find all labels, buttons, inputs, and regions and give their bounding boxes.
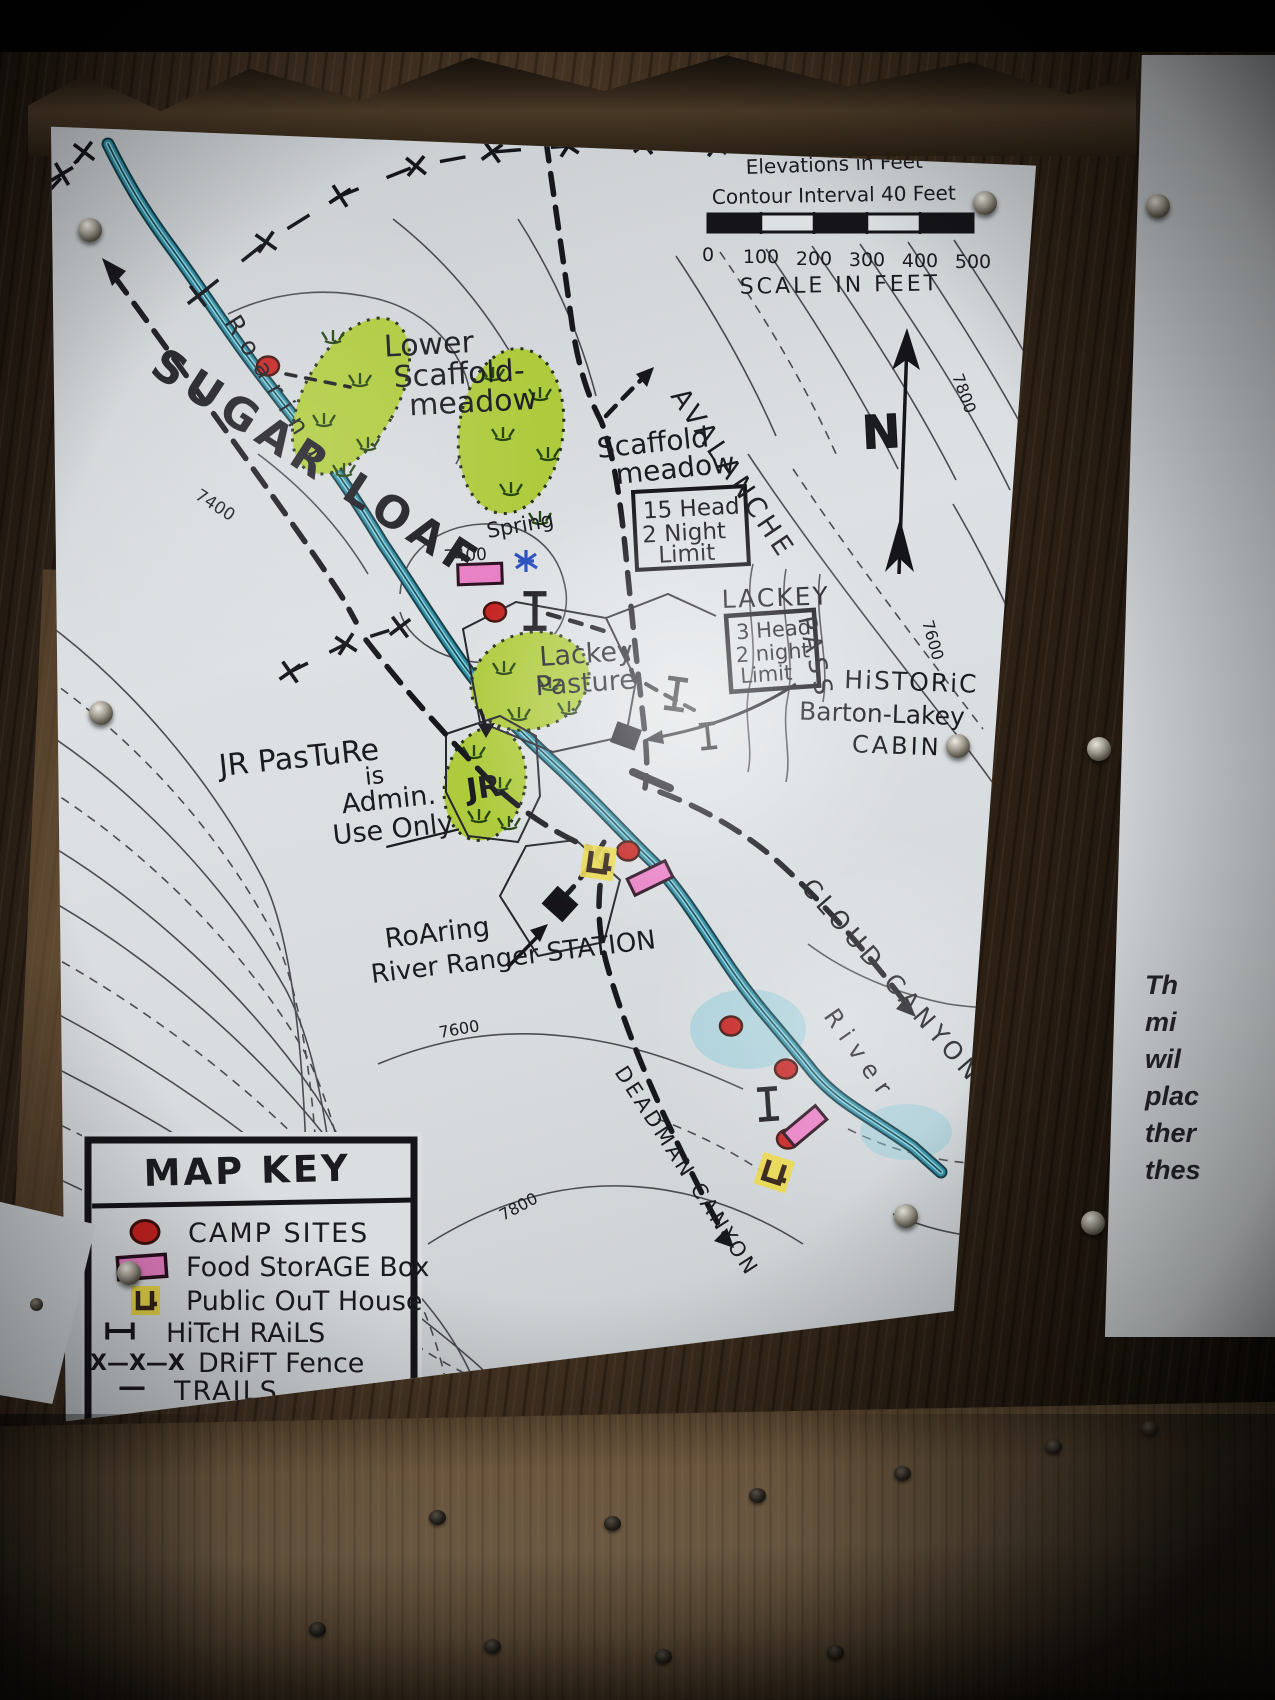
drift-fence-corner: [50, 142, 94, 190]
pin: [30, 1298, 43, 1311]
label-line: Limit: [739, 661, 793, 689]
screw: [604, 1516, 621, 1531]
campsite-dot: [775, 1060, 797, 1079]
label-line: Barton-Lakey: [799, 696, 966, 731]
tack: [894, 1204, 918, 1228]
screw: [894, 1466, 911, 1481]
legend-label: HiTcH RAiLS: [166, 1318, 325, 1349]
text-fragment: wil: [1145, 1041, 1201, 1078]
lackey-cabin-square: [610, 721, 642, 751]
map-paper: N 0 100 200 300 400 500 SCALE IN FEET El…: [48, 124, 1038, 1424]
hitch-rail: [524, 594, 547, 629]
legend-label: Food StorAGE Box: [186, 1252, 429, 1283]
map-key-title: MAP KEY: [143, 1147, 351, 1195]
contour-label: 7800: [948, 371, 980, 416]
label-line: JR PasTuRe: [215, 732, 381, 784]
tack: [117, 1261, 141, 1285]
scale-tick: 400: [902, 250, 938, 272]
tack: [1146, 194, 1170, 218]
screw: [429, 1510, 446, 1525]
label-jr: JR: [462, 768, 503, 808]
spring-marker: [515, 550, 537, 572]
screw: [484, 1639, 501, 1654]
text-fragment: mi: [1145, 1004, 1201, 1041]
outhouse: [580, 844, 617, 881]
hand-drawn-map: N 0 100 200 300 400 500 SCALE IN FEET El…: [48, 124, 1038, 1424]
label-line: CABIN: [852, 730, 943, 761]
legend-label: CAMP SITES: [188, 1218, 369, 1249]
scale-caption: SCALE IN FEET: [740, 271, 941, 299]
legend-label: Public OuT House: [186, 1286, 423, 1317]
screw: [827, 1645, 844, 1660]
tack: [1087, 737, 1111, 761]
label-lower-scaffold: Lower Scaffold- meadow: [383, 322, 538, 425]
campsite-dot: [484, 603, 506, 622]
tack: [946, 734, 970, 758]
screw: [1045, 1439, 1062, 1454]
text-fragment: Th: [1145, 967, 1201, 1004]
food-box: [783, 1106, 827, 1147]
text-fragment: plac: [1145, 1078, 1201, 1115]
scale-tick: 200: [796, 248, 832, 270]
campsite-dot: [131, 1221, 159, 1244]
scale-bar: 0 100 200 300 400 500 SCALE IN FEET Elev…: [702, 149, 991, 300]
contour-interval-note: Contour Interval 40 Feet: [712, 181, 956, 209]
legend-label: DRiFT Fence: [198, 1348, 364, 1379]
tack: [78, 218, 102, 242]
campsite-dot: [720, 1017, 742, 1036]
outhouse: [754, 1152, 796, 1194]
tack: [1081, 1211, 1105, 1235]
contour-label: 7400: [191, 485, 238, 525]
contour-label: 7400: [443, 545, 487, 567]
label-lackey-pasture: Lackey Pasture: [532, 635, 636, 702]
trail-glyph: —: [118, 1370, 146, 1403]
label-line: Limit: [658, 540, 716, 569]
scale-tick: 0: [702, 244, 714, 266]
adjacent-sign-text: Th mi wil plac ther thes: [1145, 967, 1201, 1189]
contour-label: 7600: [918, 618, 947, 662]
tack: [973, 191, 997, 215]
scale-tick: 300: [849, 249, 885, 271]
label-line: Pasture: [534, 664, 636, 702]
label-line: HiSTORiC: [844, 665, 979, 699]
hitch-rail: [757, 1088, 779, 1119]
text-fragment: ther: [1145, 1115, 1201, 1152]
bottom-plank: [0, 1402, 1275, 1700]
scale-tick: 100: [743, 246, 779, 268]
label-line: meadow: [408, 382, 538, 424]
label-jr-pasture: JR PasTuRe is Admin. Use Only: [215, 725, 460, 864]
screw: [749, 1488, 766, 1503]
screw: [1141, 1421, 1158, 1436]
label-deadman-canyon: DEADMAN CANYON: [610, 1062, 764, 1281]
screw: [655, 1649, 672, 1664]
contour-label: 7800: [496, 1189, 541, 1225]
screw: [309, 1622, 326, 1637]
campsite-dot: [617, 842, 639, 861]
tack: [89, 701, 113, 725]
north-label: N: [861, 404, 902, 460]
text-fragment: thes: [1145, 1152, 1201, 1189]
scale-tick: 500: [955, 251, 991, 273]
label-cloud-canyon: CLOUD CANYON: [795, 873, 988, 1089]
trail-sign-photo: N 0 100 200 300 400 500 SCALE IN FEET El…: [0, 0, 1275, 1700]
outhouse: [131, 1286, 160, 1315]
